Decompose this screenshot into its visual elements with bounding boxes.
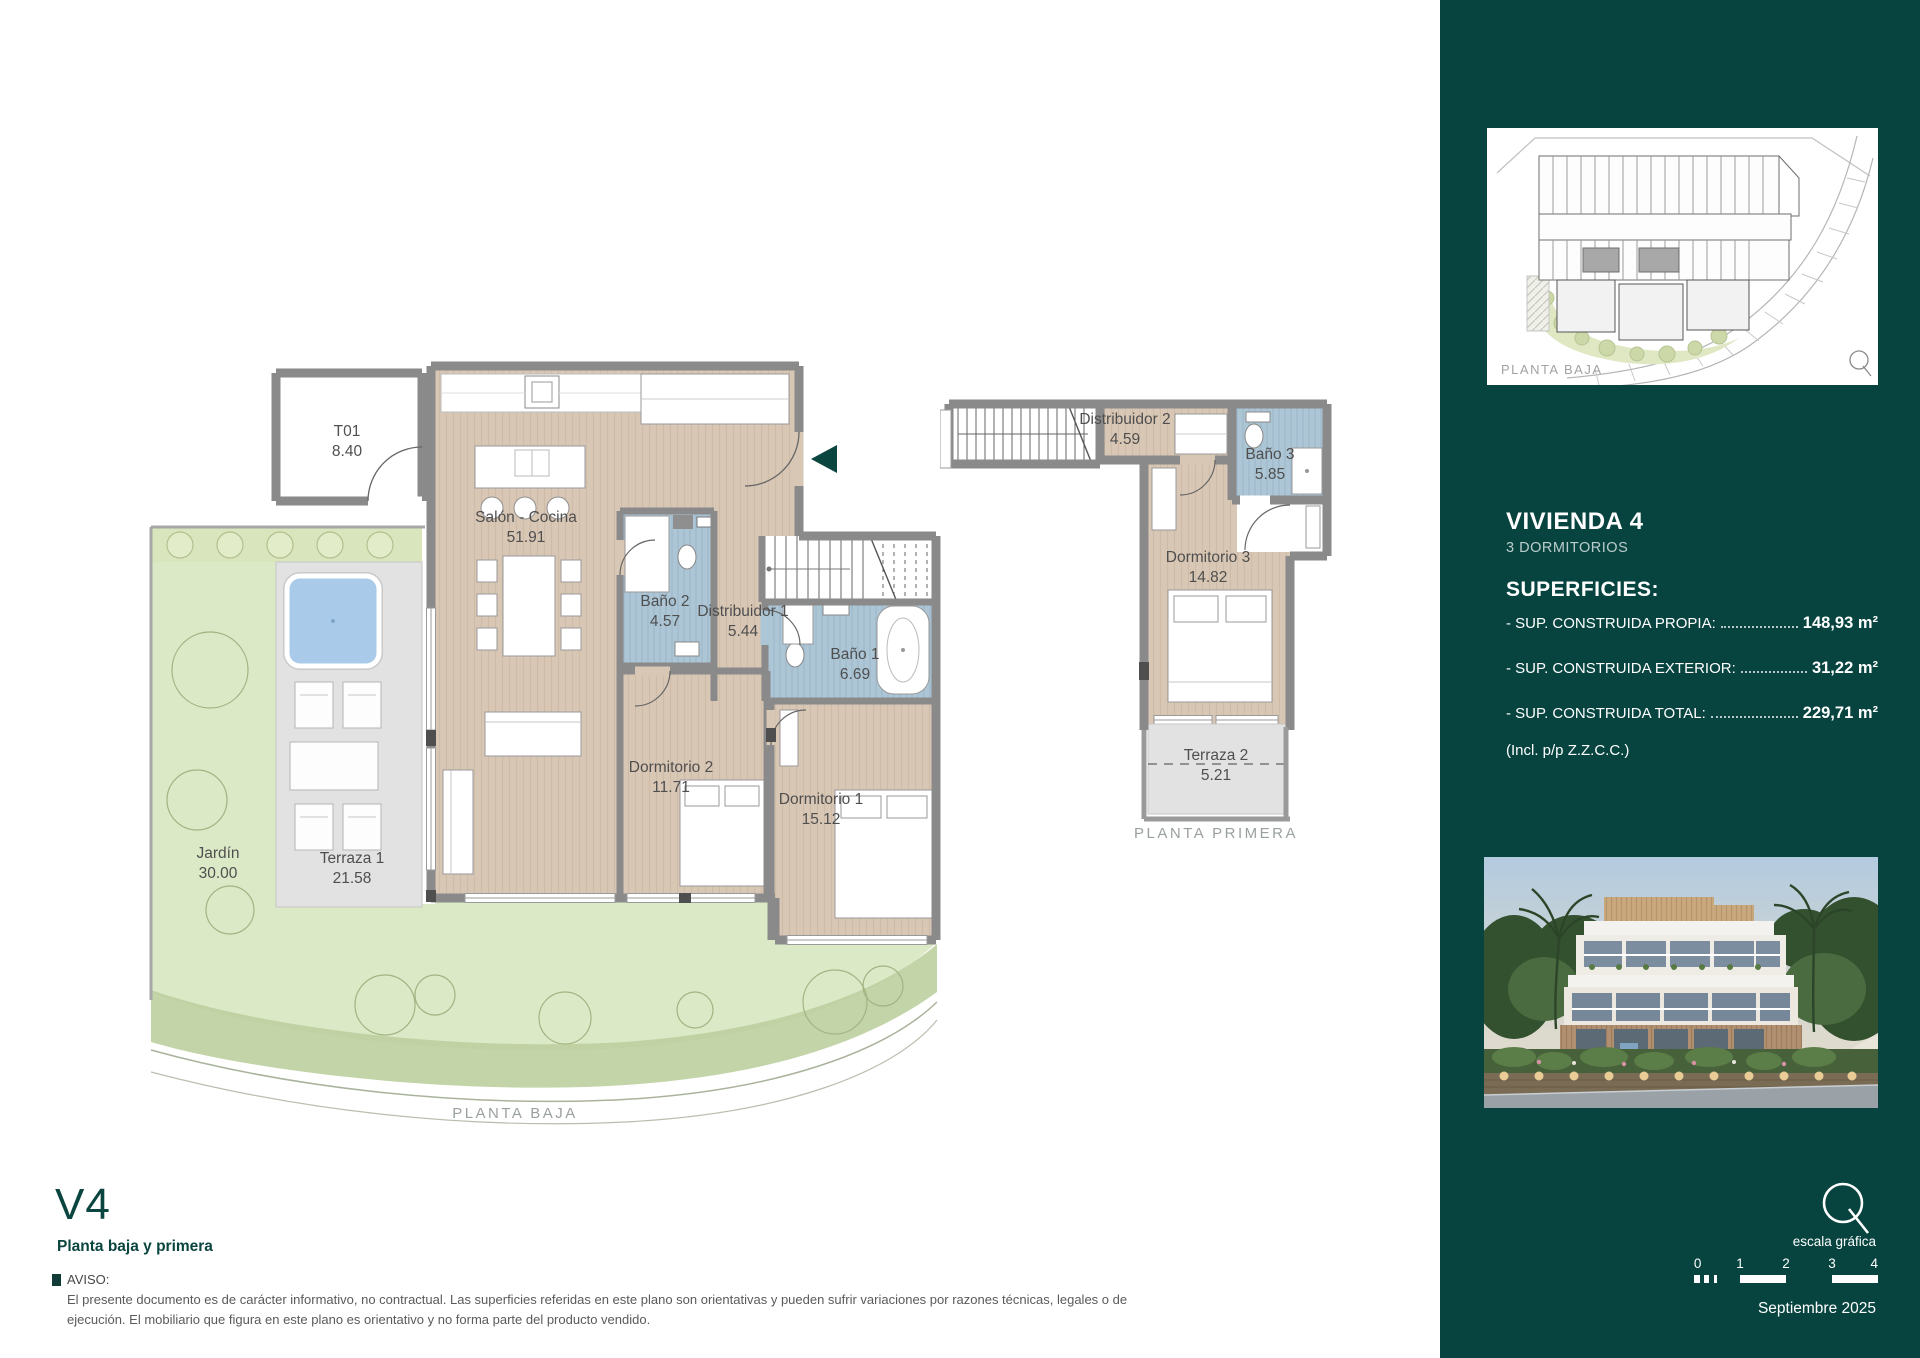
first-floor-plan: Distribuidor 2 4.59 Baño 3 5.85 Dormitor…: [940, 390, 1350, 855]
building-render-image: [1484, 857, 1878, 1108]
closet: [1152, 468, 1176, 530]
room-area: 30.00: [199, 864, 238, 884]
building-render: [1484, 857, 1878, 1108]
room-name: Dormitorio 2: [629, 758, 713, 778]
surface-value: 148,93 m²: [1803, 614, 1878, 633]
windows: [1154, 716, 1278, 725]
scale-label: escala gráfica: [1793, 1234, 1876, 1249]
room-area: 4.59: [1110, 430, 1140, 450]
unit-code: V4: [55, 1180, 111, 1230]
room-area: 8.40: [332, 442, 362, 462]
surface-label: - SUP. CONSTRUIDA PROPIA:: [1506, 615, 1716, 632]
room-label-jardin: Jardín 30.00: [196, 844, 239, 885]
stairs-ground: [762, 536, 936, 602]
room-name: Distribuidor 1: [697, 602, 788, 622]
ground-floor-plan: T01 8.40 Salón - Cocina 51.91 Baño 2 4.5…: [135, 350, 975, 1140]
surfaces-note: (Incl. p/p Z.Z.C.C.): [1506, 742, 1629, 759]
surfaces-table: - SUP. CONSTRUIDA PROPIA: 148,93 m² - SU…: [1506, 614, 1878, 749]
room-area: 51.91: [507, 528, 546, 548]
room-label-terraza1: Terraza 1 21.58: [320, 849, 385, 890]
dotted-leader: [1721, 626, 1798, 628]
floorplan-sheet: T01 8.40 Salón - Cocina 51.91 Baño 2 4.5…: [0, 0, 1920, 1358]
first-floor-caption: PLANTA PRIMERA: [1134, 825, 1298, 842]
scale-bar: [1694, 1275, 1878, 1283]
entry-arrow-icon: [811, 445, 837, 473]
scale-tick: 2: [1782, 1256, 1790, 1271]
stairs-first: [949, 404, 1096, 464]
stair-window: [940, 410, 951, 468]
room-label-dormitorio2: Dormitorio 2 11.71: [629, 758, 713, 799]
room-area: 6.69: [840, 665, 870, 685]
room-name: Jardín: [196, 844, 239, 864]
room-name: T01: [334, 422, 361, 442]
room-name: Salón - Cocina: [475, 508, 577, 528]
site-plan-drawing: [1487, 128, 1878, 385]
notice-header: AVISO:: [52, 1272, 109, 1287]
site-plan-card: PLANTA BAJA: [1487, 128, 1878, 385]
unit-floors: Planta baja y primera: [57, 1238, 213, 1256]
ground-floor-caption: PLANTA BAJA: [452, 1105, 578, 1122]
room-area: 21.58: [333, 869, 372, 889]
room-name: Distribuidor 2: [1079, 410, 1170, 430]
sidebar: PLANTA BAJA VIVIENDA 4 3 DORMITORIOS SUP…: [1440, 0, 1920, 1358]
room-name: Terraza 1: [320, 849, 385, 869]
surface-row: - SUP. CONSTRUIDA PROPIA: 148,93 m²: [1506, 614, 1878, 659]
room-label-dormitorio3: Dormitorio 3 14.82: [1166, 548, 1250, 589]
room-label-salon: Salón - Cocina 51.91: [475, 508, 577, 549]
bed: [1168, 590, 1272, 702]
room-name: Baño 3: [1245, 445, 1294, 465]
surface-label: - SUP. CONSTRUIDA TOTAL:: [1506, 705, 1706, 722]
scale-tick: 1: [1736, 1256, 1744, 1271]
room-label-distribuidor1: Distribuidor 1 5.44: [697, 602, 788, 643]
room-label-bano3: Baño 3 5.85: [1245, 445, 1294, 486]
surface-label: - SUP. CONSTRUIDA EXTERIOR:: [1506, 660, 1736, 677]
unit-title: VIVIENDA 4: [1506, 508, 1643, 536]
unit-subtitle: 3 DORMITORIOS: [1506, 540, 1628, 556]
surface-row: - SUP. CONSTRUIDA EXTERIOR: 31,22 m²: [1506, 659, 1878, 704]
room-label-distribuidor2: Distribuidor 2 4.59: [1079, 410, 1170, 451]
room-name: Terraza 2: [1184, 746, 1249, 766]
surfaces-title: SUPERFICIES:: [1506, 578, 1659, 602]
graphic-scale: 0 1 2 3 4: [1694, 1256, 1878, 1283]
room-label-t01: T01 8.40: [332, 422, 362, 463]
dotted-leader: [1741, 671, 1807, 673]
room-area: 5.44: [728, 622, 758, 642]
surface-value: 31,22 m²: [1812, 659, 1878, 678]
notice-title: AVISO:: [67, 1272, 109, 1287]
brand-logo-icon: [1820, 1180, 1872, 1236]
vestibule: [1237, 502, 1323, 552]
room-label-bano2: Baño 2 4.57: [640, 592, 689, 633]
room-area: 14.82: [1189, 568, 1228, 588]
ground-floor-drawing: [135, 350, 975, 1140]
room-area: 11.71: [652, 778, 690, 798]
site-plan-caption: PLANTA BAJA: [1501, 362, 1603, 377]
dotted-leader: [1711, 716, 1798, 718]
room-area: 4.57: [650, 612, 680, 632]
room-area: 5.85: [1255, 465, 1285, 485]
scale-tick: 3: [1828, 1256, 1836, 1271]
surface-value: 229,71 m²: [1803, 704, 1878, 723]
room-label-dormitorio1: Dormitorio 1 15.12: [779, 790, 863, 831]
room-name: Dormitorio 3: [1166, 548, 1250, 568]
room-area: 5.21: [1201, 766, 1231, 786]
scale-tick: 0: [1694, 1256, 1702, 1271]
room-label-terraza2: Terraza 2 5.21: [1184, 746, 1249, 787]
scale-tick: 4: [1871, 1256, 1879, 1271]
scale-ticks: 0 1 2 3 4: [1694, 1256, 1878, 1273]
room-name: Baño 1: [830, 645, 879, 665]
room-name: Dormitorio 1: [779, 790, 863, 810]
notice-text: El presente documento es de carácter inf…: [67, 1290, 1187, 1330]
room-name: Baño 2: [640, 592, 689, 612]
room-label-bano1: Baño 1 6.69: [830, 645, 879, 686]
date-label: Septiembre 2025: [1758, 1300, 1876, 1318]
notice-bullet-icon: [52, 1274, 61, 1286]
room-area: 15.12: [802, 810, 841, 830]
